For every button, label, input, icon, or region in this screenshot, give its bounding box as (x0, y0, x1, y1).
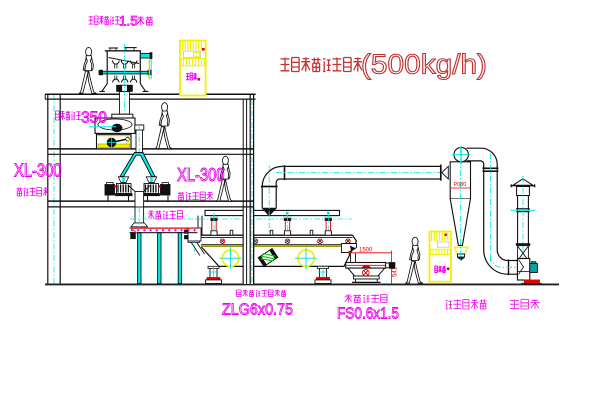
svg-text:541: 541 (393, 266, 399, 277)
svg-text:1500: 1500 (359, 248, 373, 254)
svg-text:ZLG6x0.75: ZLG6x0.75 (222, 302, 293, 319)
svg-text:1.5: 1.5 (119, 14, 138, 29)
svg-text:P080: P080 (454, 182, 467, 188)
svg-text:XL-300: XL-300 (14, 161, 62, 181)
svg-text:(500kg/h): (500kg/h) (361, 49, 487, 80)
svg-text:FS0.6x1.5: FS0.6x1.5 (337, 306, 399, 323)
svg-text:350: 350 (81, 110, 107, 127)
svg-text:XL-300: XL-300 (177, 165, 225, 185)
